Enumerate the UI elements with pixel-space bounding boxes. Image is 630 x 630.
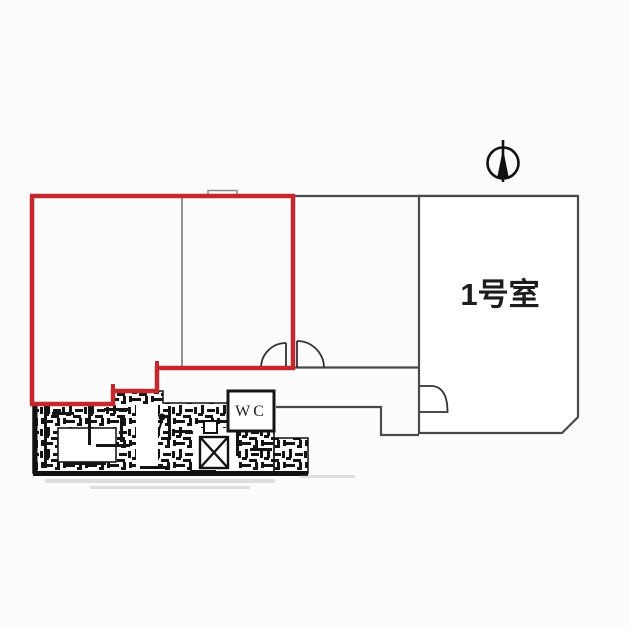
scan-smudges — [45, 475, 355, 489]
door-arc-left — [261, 343, 286, 368]
knob-dot — [159, 414, 166, 421]
elevator-x-icon — [200, 437, 228, 468]
room-1-walls — [419, 196, 578, 433]
corridor-step — [276, 407, 419, 435]
highlighted-unit-outline — [32, 196, 293, 404]
wc-label: WC — [235, 403, 267, 420]
floor-plan-svg: WC 1号室 — [0, 0, 630, 630]
floor-plan-image: WC 1号室 — [0, 0, 630, 630]
stair-block — [274, 438, 308, 473]
highlight-polygon — [32, 196, 293, 404]
north-arrow-icon — [488, 140, 519, 182]
door-arc-right — [297, 341, 324, 368]
scan-corridor-gap — [136, 405, 158, 471]
utility-box — [204, 421, 217, 433]
room-1-label: 1号室 — [460, 277, 539, 312]
